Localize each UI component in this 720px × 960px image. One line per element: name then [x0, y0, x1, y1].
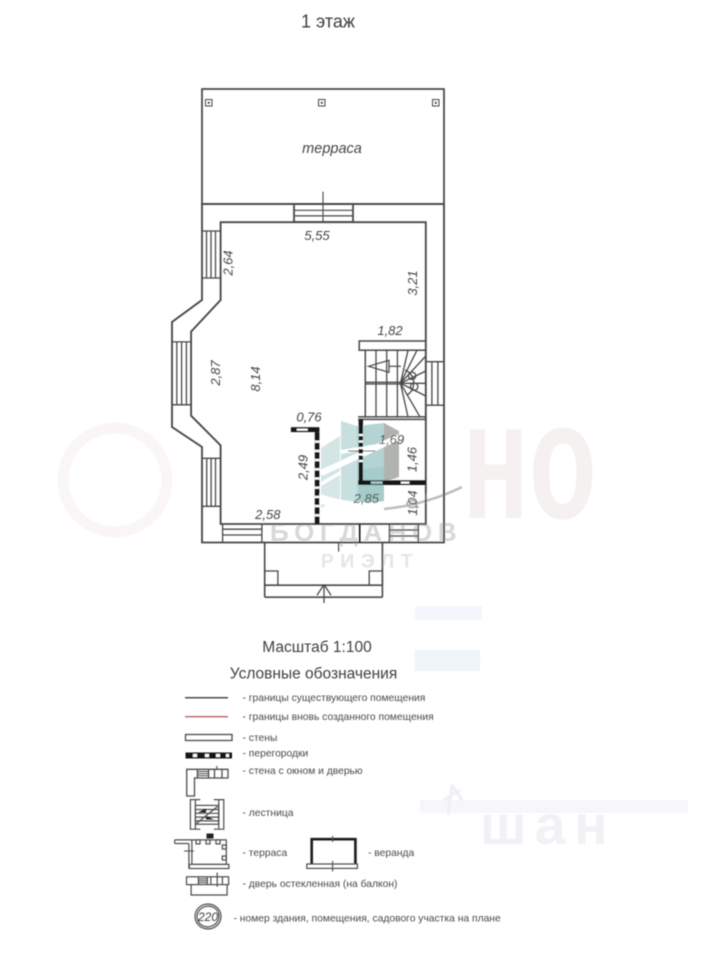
svg-text:шан: шан: [480, 793, 616, 856]
svg-text:3,21: 3,21: [405, 270, 420, 295]
svg-text:2,87: 2,87: [208, 360, 223, 387]
svg-text:- стены: - стены: [243, 733, 278, 744]
svg-text:терраса: терраса: [302, 141, 362, 157]
svg-text:- границы существующего помеще: - границы существующего помещения: [243, 693, 426, 704]
svg-text:- номер здания, помещения, сад: - номер здания, помещения, садового учас…: [234, 913, 501, 924]
svg-text:но: но: [462, 367, 597, 555]
svg-text:- границы вновь созданного пом: - границы вновь созданного помещения: [243, 712, 434, 723]
svg-text:Условные обозначения: Условные обозначения: [230, 666, 397, 683]
svg-text:- дверь остекленная (на балкон: - дверь остекленная (на балкон): [243, 878, 398, 890]
svg-text:2,64: 2,64: [221, 250, 236, 276]
svg-text:1,46: 1,46: [404, 446, 419, 472]
svg-text:РИЭЛТ: РИЭЛТ: [321, 551, 419, 573]
svg-text:- стена с окном и дверью: - стена с окном и дверью: [243, 766, 363, 777]
svg-text:- терраса: - терраса: [243, 848, 288, 859]
svg-text:1,82: 1,82: [377, 323, 403, 338]
svg-text:Масштаб 1:100: Масштаб 1:100: [262, 639, 372, 656]
svg-text:5,55: 5,55: [304, 228, 330, 243]
svg-text:- перегородки: - перегородки: [243, 749, 309, 760]
svg-text:0,76: 0,76: [296, 410, 322, 425]
svg-text:- лестница: - лестница: [243, 808, 294, 819]
svg-text:1,04: 1,04: [405, 490, 420, 515]
svg-text:- веранда: - веранда: [368, 848, 415, 859]
svg-text:8,14: 8,14: [248, 366, 263, 391]
svg-text:2,49: 2,49: [296, 455, 311, 481]
svg-text:1,69: 1,69: [379, 432, 404, 447]
svg-text:2,85: 2,85: [353, 491, 380, 506]
svg-text:220: 220: [197, 910, 218, 924]
svg-text:1 этаж: 1 этаж: [301, 12, 355, 32]
svg-text:2,58: 2,58: [254, 507, 281, 522]
